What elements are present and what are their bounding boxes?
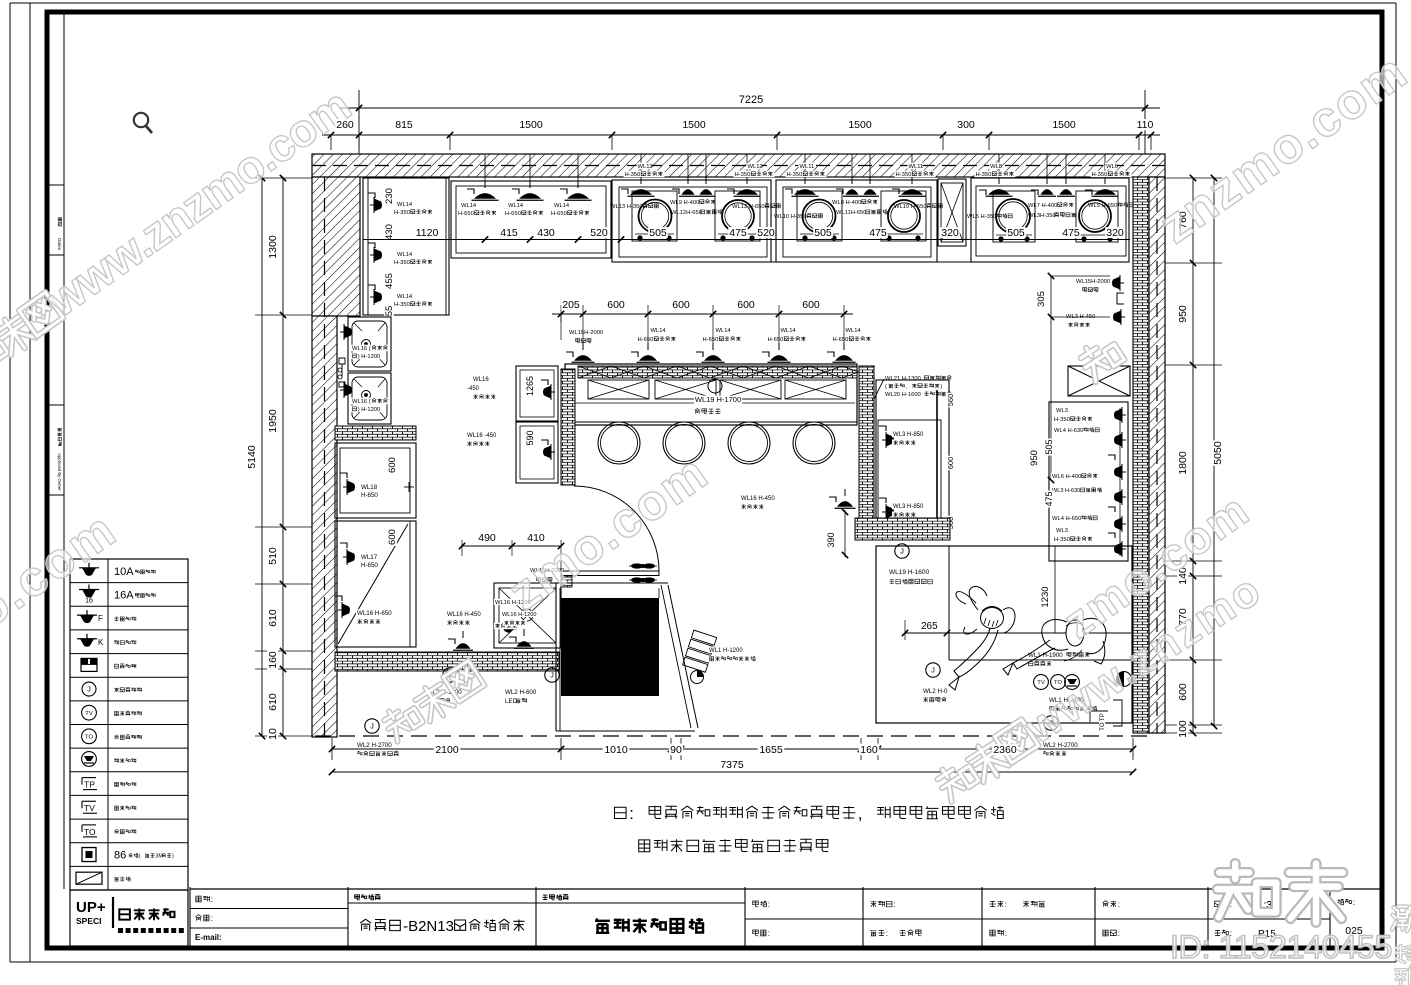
svg-text:J: J (900, 547, 904, 556)
svg-text:H-350: H-350 (1054, 537, 1070, 543)
svg-text::: : (1118, 929, 1120, 938)
svg-text:WL12: WL12 (748, 164, 763, 170)
svg-text:1230: 1230 (1040, 586, 1051, 607)
svg-text:WL16 (: WL16 ( (352, 346, 371, 352)
svg-text:WL14: WL14 (397, 252, 413, 258)
svg-text:86: 86 (114, 850, 126, 862)
svg-text:TV: TV (84, 803, 95, 813)
svg-text:1500: 1500 (682, 119, 706, 131)
svg-text:H-650: H-650 (833, 337, 849, 343)
svg-text:1950: 1950 (267, 409, 279, 433)
svg-text:505: 505 (1007, 227, 1025, 239)
svg-text:160: 160 (860, 744, 878, 756)
svg-text:600: 600 (737, 299, 755, 311)
svg-text:600: 600 (387, 529, 398, 545)
svg-text:7225: 7225 (739, 94, 763, 106)
svg-text:H-350: H-350 (976, 172, 992, 178)
svg-text:600: 600 (607, 299, 625, 311)
svg-text:455: 455 (384, 273, 395, 289)
svg-text:(: ( (885, 384, 887, 390)
svg-text:520: 520 (590, 227, 608, 239)
svg-text:Dates: Dates (57, 238, 62, 251)
svg-text:505: 505 (1044, 439, 1054, 454)
svg-text:SPECI: SPECI (76, 916, 102, 926)
svg-text:WL8 H-400: WL8 H-400 (832, 200, 861, 206)
svg-text:LED: LED (505, 698, 518, 705)
svg-text:10A: 10A (114, 566, 134, 578)
svg-text:-450: -450 (467, 386, 480, 392)
svg-text:260: 260 (336, 119, 354, 131)
svg-text:WL11: WL11 (909, 164, 924, 170)
svg-text::: : (211, 914, 213, 923)
svg-text:WL14: WL14 (508, 203, 524, 209)
svg-text:WL12H-650: WL12H-650 (671, 210, 702, 216)
svg-text:WL14: WL14 (397, 202, 413, 208)
svg-text:475: 475 (729, 227, 747, 239)
svg-text:WL16 H-650: WL16 H-650 (357, 610, 392, 617)
svg-text:600: 600 (387, 457, 398, 473)
svg-text:WL13 H-350: WL13 H-350 (610, 204, 643, 210)
svg-text:WL12: WL12 (638, 164, 653, 170)
svg-text:1500: 1500 (519, 119, 543, 131)
svg-text:7375: 7375 (720, 759, 744, 771)
svg-text:430: 430 (384, 224, 395, 240)
svg-text:1120: 1120 (416, 227, 439, 239)
svg-text:WL3: WL3 (1056, 528, 1068, 534)
svg-text:WL16 (: WL16 ( (352, 399, 371, 405)
svg-text:610: 610 (267, 609, 279, 627)
svg-text:TO: TO (85, 734, 93, 740)
svg-text:WL14: WL14 (781, 328, 797, 334)
svg-text::: : (1118, 900, 1120, 909)
svg-text:1500: 1500 (848, 119, 872, 131)
svg-text:J: J (370, 722, 374, 731)
svg-text:600: 600 (672, 299, 690, 311)
svg-text:WL19 H-1700: WL19 H-1700 (695, 395, 741, 404)
svg-text:K: K (98, 638, 104, 647)
svg-text:300: 300 (957, 119, 975, 131)
svg-text:-B2N13: -B2N13 (403, 918, 454, 935)
svg-text::: : (1005, 900, 1007, 909)
svg-text:WL16: WL16 (473, 377, 489, 383)
svg-text:16: 16 (85, 598, 93, 605)
svg-text:H-350: H-350 (394, 210, 410, 216)
svg-text:410: 410 (527, 532, 545, 544)
svg-text:WL16 H-450: WL16 H-450 (447, 612, 481, 618)
svg-text:): ) (172, 854, 174, 860)
svg-text:TO: TO (84, 827, 96, 837)
svg-text:H-650: H-650 (703, 337, 719, 343)
svg-text:WL9 H-400: WL9 H-400 (670, 200, 699, 206)
svg-text:505: 505 (649, 227, 667, 239)
svg-text:WL16 H-450: WL16 H-450 (741, 496, 775, 502)
svg-text:(: ( (139, 854, 141, 860)
svg-text:WL14: WL14 (397, 294, 413, 300)
svg-text:55: 55 (384, 306, 395, 317)
svg-text:WL16 -450: WL16 -450 (467, 433, 497, 439)
svg-text:WL18: WL18 (361, 484, 378, 491)
svg-text:475: 475 (1044, 491, 1054, 506)
svg-text:H-350: H-350 (896, 172, 912, 178)
svg-text:475: 475 (1062, 227, 1080, 239)
svg-text:WL11H-650: WL11H-650 (836, 210, 867, 216)
svg-text:WL2 H-600: WL2 H-600 (505, 689, 537, 696)
svg-text:H-650: H-650 (551, 211, 567, 217)
svg-text:WL10 H-650: WL10 H-650 (894, 204, 927, 210)
svg-text:430: 430 (537, 227, 555, 239)
svg-text:E-mail:: E-mail: (195, 933, 222, 942)
svg-text:) H-1200: ) H-1200 (358, 354, 381, 360)
svg-text:TP: TP (84, 780, 95, 790)
svg-text:160: 160 (267, 651, 279, 669)
svg-text:H-350: H-350 (1054, 417, 1070, 423)
svg-text:WL4 H-650: WL4 H-650 (1052, 516, 1081, 522)
svg-text:J: J (87, 685, 91, 694)
svg-text:H-650: H-650 (458, 211, 474, 217)
svg-text:2100: 2100 (435, 744, 459, 756)
svg-text:WL3 H-630: WL3 H-630 (1052, 488, 1080, 494)
svg-text:100: 100 (1177, 720, 1189, 738)
svg-text:WL14: WL14 (846, 328, 862, 334)
svg-text:305: 305 (1036, 291, 1047, 307)
svg-text:600: 600 (802, 299, 820, 311)
svg-text:,: , (858, 805, 863, 823)
svg-text:): ) (940, 384, 942, 390)
svg-text:1010: 1010 (604, 744, 628, 756)
svg-text:WL15H-2000: WL15H-2000 (569, 330, 603, 336)
svg-text::: : (1005, 929, 1007, 938)
svg-text:320: 320 (941, 227, 959, 239)
svg-text:490: 490 (478, 532, 496, 544)
svg-text:WL7 H-400: WL7 H-400 (1028, 203, 1057, 209)
svg-text::: : (768, 900, 770, 909)
svg-text:WL13 H-650: WL13 H-650 (732, 204, 765, 210)
svg-text:WL6 H-400: WL6 H-400 (1052, 474, 1081, 480)
svg-text:2360: 2360 (993, 744, 1017, 756)
svg-text:520: 520 (757, 227, 775, 239)
svg-text:H-650: H-650 (768, 337, 784, 343)
svg-text:505: 505 (814, 227, 832, 239)
svg-text:H-350: H-350 (394, 260, 410, 266)
svg-text:WL19 H-1600: WL19 H-1600 (889, 569, 929, 576)
svg-text:WL15H-2000: WL15H-2000 (1076, 279, 1110, 285)
svg-text:WL14: WL14 (554, 203, 570, 209)
svg-text:H-350: H-350 (1092, 172, 1108, 178)
svg-text:510: 510 (267, 547, 279, 565)
svg-text:TV: TV (1037, 680, 1045, 686)
svg-text:265: 265 (921, 621, 938, 632)
svg-text:16A: 16A (114, 590, 134, 602)
svg-text:10: 10 (267, 728, 279, 740)
svg-text:H-650: H-650 (361, 492, 378, 499)
svg-text:F: F (98, 614, 103, 623)
svg-text:WL5 H-650: WL5 H-650 (1088, 203, 1117, 209)
svg-text:WL21 H-1300: WL21 H-1300 (885, 376, 921, 382)
svg-text:950: 950 (1029, 450, 1040, 466)
svg-text:1655: 1655 (759, 744, 783, 756)
svg-text:1300: 1300 (267, 235, 279, 259)
svg-text:TV: TV (85, 711, 93, 717)
svg-text:) H-1200: ) H-1200 (358, 407, 381, 413)
svg-text:WL5 H-350: WL5 H-350 (967, 214, 996, 220)
svg-text:WL17: WL17 (361, 554, 378, 561)
svg-text:WL14: WL14 (461, 203, 477, 209)
svg-text:J: J (931, 666, 935, 675)
svg-text:WL10 H-350: WL10 H-350 (774, 214, 807, 220)
svg-text:WL2 H-0: WL2 H-0 (923, 688, 948, 695)
svg-text:415: 415 (500, 227, 518, 239)
svg-text:90: 90 (670, 744, 682, 756)
svg-text:Approved By Owner: Approved By Owner (57, 453, 62, 491)
svg-text:600: 600 (946, 457, 955, 470)
svg-text:320: 320 (1106, 227, 1124, 239)
svg-text:WL14: WL14 (716, 328, 732, 334)
svg-text:390: 390 (826, 532, 836, 547)
svg-text:WL6: WL6 (1106, 164, 1118, 170)
svg-text:610: 610 (267, 693, 279, 711)
svg-text:WL4 H-630: WL4 H-630 (1054, 428, 1083, 434)
svg-text:WL8: WL8 (990, 164, 1002, 170)
svg-text:WL1 H-1200: WL1 H-1200 (709, 648, 743, 654)
svg-text::: : (768, 929, 770, 938)
svg-text:WL11: WL11 (800, 164, 815, 170)
svg-text:WL3H-350: WL3H-350 (1028, 213, 1056, 219)
svg-text::: : (629, 805, 634, 823)
svg-text:560: 560 (946, 394, 955, 407)
svg-text:WL14: WL14 (651, 328, 667, 334)
svg-text:H-350: H-350 (625, 172, 641, 178)
svg-text:475: 475 (869, 227, 887, 239)
svg-text:600: 600 (1177, 683, 1189, 701)
svg-text:ID: 1152140455: ID: 1152140455 (1170, 929, 1392, 965)
svg-text:WL3 H-850: WL3 H-850 (893, 432, 924, 438)
svg-text::: : (1353, 898, 1355, 907)
svg-text::: : (886, 929, 888, 938)
svg-text:590: 590 (525, 430, 535, 445)
svg-text:UP+: UP+ (76, 899, 106, 916)
svg-text:H-350: H-350 (735, 172, 751, 178)
svg-text:H-350: H-350 (394, 302, 410, 308)
svg-text:1500: 1500 (1052, 119, 1076, 131)
svg-text:WL20 H-1600: WL20 H-1600 (885, 392, 921, 398)
svg-text:1265: 1265 (525, 376, 535, 396)
svg-text:110: 110 (1137, 119, 1154, 131)
svg-text::: : (894, 900, 896, 909)
svg-text:230: 230 (384, 188, 395, 204)
svg-text:WL3 H-850: WL3 H-850 (893, 504, 924, 510)
svg-text:5050: 5050 (1212, 441, 1224, 465)
svg-text:815: 815 (395, 119, 413, 131)
svg-text:950: 950 (1177, 305, 1189, 323)
svg-text:1800: 1800 (1177, 451, 1189, 475)
svg-text:WL2 H-2700: WL2 H-2700 (357, 742, 392, 749)
svg-text:H-650: H-650 (505, 211, 521, 217)
svg-text:5140: 5140 (246, 445, 258, 469)
svg-text:H-350: H-350 (787, 172, 803, 178)
svg-text:WL3: WL3 (1056, 408, 1068, 414)
svg-text:H-650: H-650 (638, 337, 654, 343)
svg-text::: : (211, 895, 213, 904)
svg-text:J: J (550, 671, 554, 680)
svg-text:H-650: H-650 (361, 562, 378, 569)
svg-text:205: 205 (562, 299, 580, 311)
